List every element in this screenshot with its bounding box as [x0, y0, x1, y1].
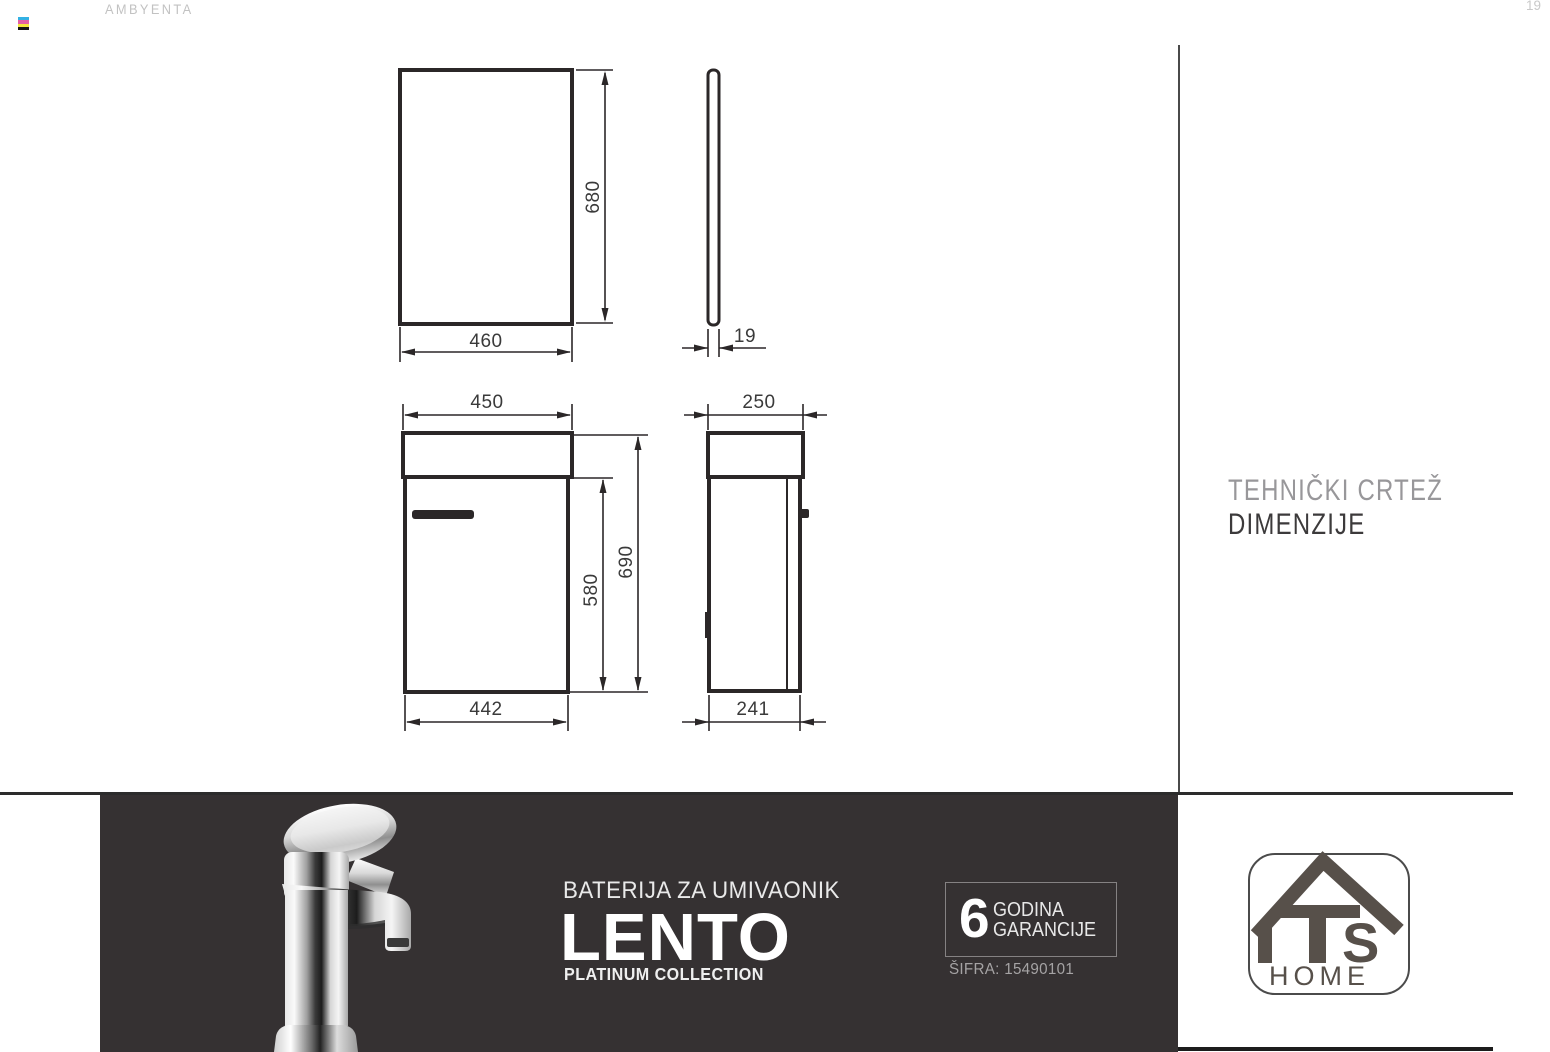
warranty-line1: GODINA	[993, 899, 1064, 921]
product-collection: PLATINUM COLLECTION	[564, 964, 764, 985]
section-title-line2: DIMENZIJE	[1228, 508, 1365, 542]
dim-cabinet-total-height: 690	[616, 545, 638, 578]
logo-home-text: HOME	[1269, 961, 1370, 991]
faucet-photo	[260, 800, 480, 1052]
product-banner: BATERIJA ZA UMIVAONIK LENTO PLATINUM COL…	[100, 795, 1178, 1052]
dim-cabinet-bottom-width: 442	[469, 699, 502, 721]
warranty-text: GODINA GARANCIJE	[993, 900, 1096, 940]
dim-cabinet-top-width: 450	[470, 392, 503, 414]
warranty-line2: GARANCIJE	[993, 919, 1096, 941]
warranty-years: 6	[959, 891, 990, 946]
section-title-line1: TEHNIČKI CRTEŽ	[1228, 474, 1443, 508]
dim-cabinet-side-top-depth: 250	[742, 392, 775, 414]
catalog-page: { "header": { "brand": "AMBYENTA", "page…	[0, 0, 1550, 1052]
dim-mirror-depth: 19	[734, 326, 756, 348]
product-code: ŠIFRA: 15490101	[949, 961, 1074, 979]
dim-cabinet-door-height: 580	[581, 573, 603, 606]
dim-cabinet-side-bottom-depth: 241	[736, 699, 769, 721]
ts-home-logo: S HOME	[1246, 851, 1416, 999]
dim-mirror-height: 680	[583, 180, 605, 213]
dim-mirror-width: 460	[469, 331, 502, 353]
warranty-badge: 6 GODINA GARANCIJE	[945, 882, 1117, 957]
